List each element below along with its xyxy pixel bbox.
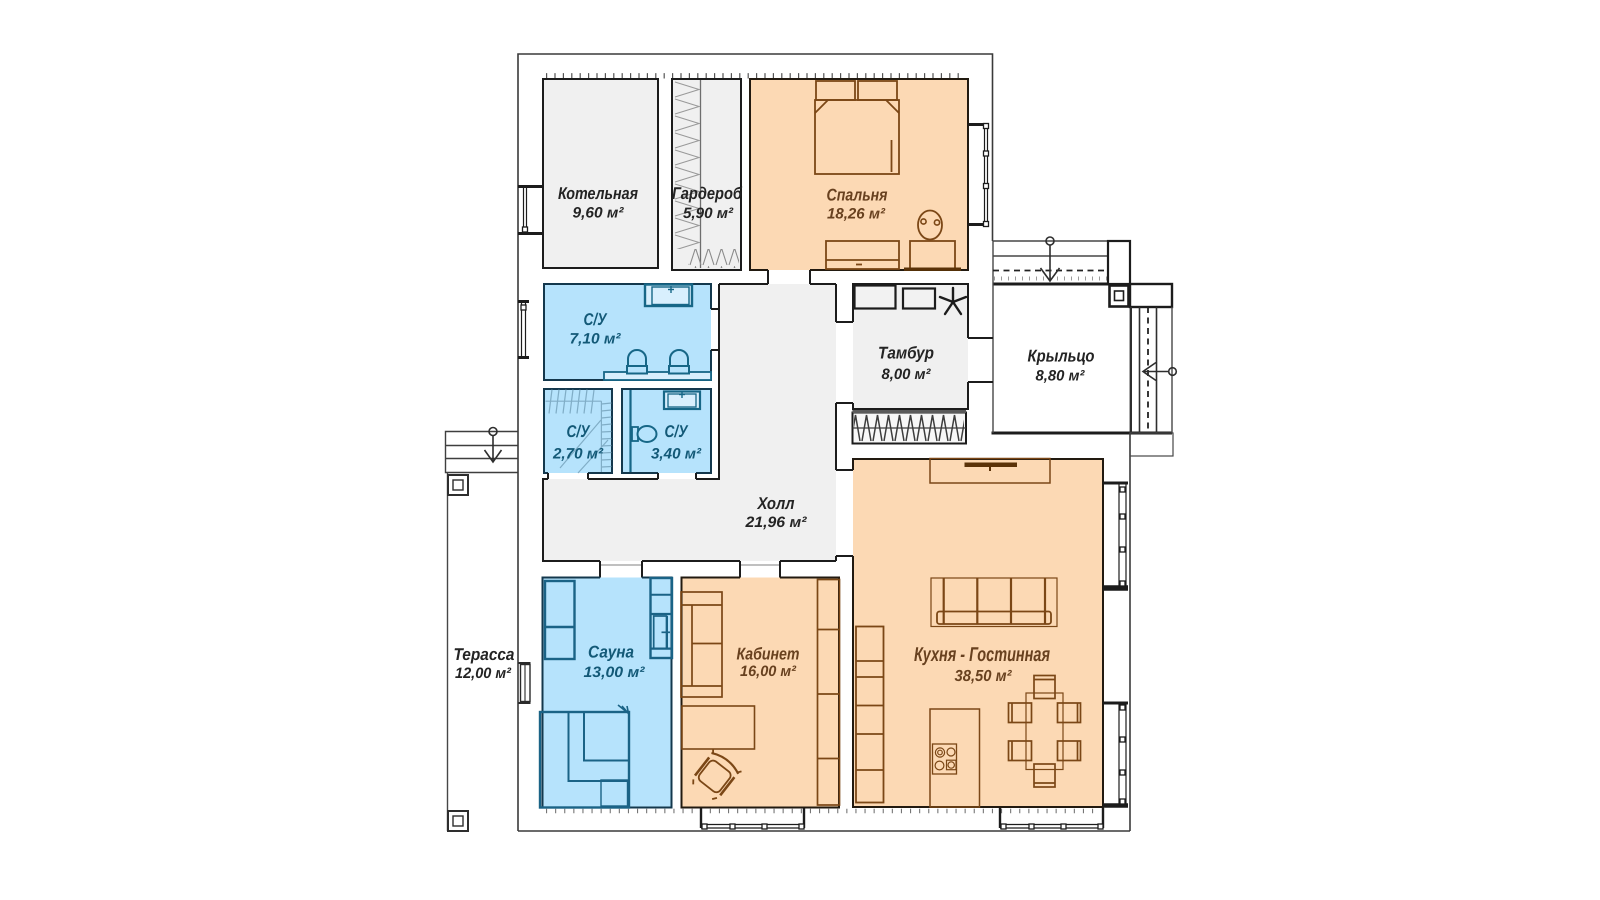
svg-text:Спальня: Спальня bbox=[827, 185, 888, 204]
svg-text:Холл: Холл bbox=[757, 494, 795, 513]
svg-text:8,00 м²: 8,00 м² bbox=[882, 366, 932, 383]
svg-text:Тамбур: Тамбур bbox=[878, 344, 934, 363]
svg-text:9,60 м²: 9,60 м² bbox=[573, 205, 625, 222]
svg-text:Крыльцо: Крыльцо bbox=[1028, 347, 1095, 366]
svg-text:13,00 м²: 13,00 м² bbox=[584, 664, 646, 681]
svg-text:Сауна: Сауна bbox=[588, 643, 634, 662]
svg-text:16,00 м²: 16,00 м² bbox=[740, 663, 797, 680]
svg-text:38,50 м²: 38,50 м² bbox=[955, 668, 1013, 685]
svg-text:18,26 м²: 18,26 м² bbox=[827, 206, 886, 223]
svg-text:2,70 м²: 2,70 м² bbox=[552, 446, 604, 463]
svg-text:Терасса: Терасса bbox=[454, 645, 515, 664]
svg-text:С/У: С/У bbox=[567, 422, 591, 441]
svg-text:5,90 м²: 5,90 м² bbox=[683, 205, 734, 222]
svg-text:7,10 м²: 7,10 м² bbox=[570, 331, 622, 348]
svg-text:Гардероб: Гардероб bbox=[672, 184, 742, 203]
svg-text:12,00 м²: 12,00 м² bbox=[455, 665, 512, 682]
svg-text:3,40 м²: 3,40 м² bbox=[651, 446, 702, 463]
svg-text:8,80 м²: 8,80 м² bbox=[1036, 368, 1086, 385]
svg-text:21,96 м²: 21,96 м² bbox=[744, 514, 807, 531]
svg-text:Котельная: Котельная bbox=[558, 184, 638, 203]
svg-text:Кухня - Гостинная: Кухня - Гостинная bbox=[914, 644, 1050, 666]
svg-text:С/У: С/У bbox=[665, 422, 689, 441]
svg-text:Кабинет: Кабинет bbox=[737, 645, 800, 664]
svg-text:С/У: С/У bbox=[584, 310, 608, 329]
